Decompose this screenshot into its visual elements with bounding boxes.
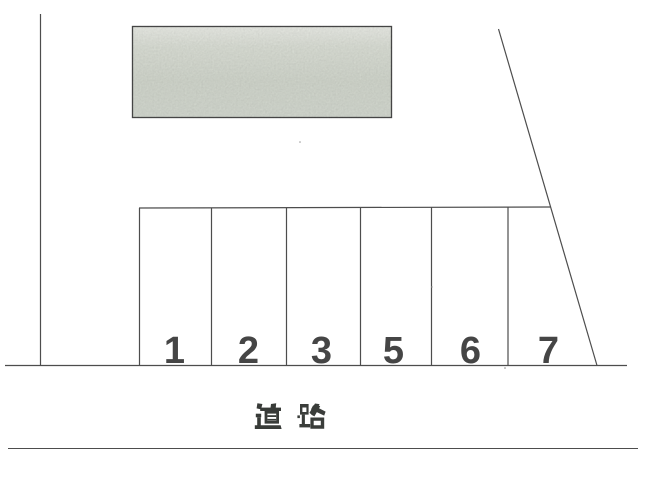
svg-text:3: 3 [311, 330, 332, 372]
svg-text:1: 1 [164, 330, 185, 372]
svg-text:5: 5 [383, 330, 404, 372]
svg-text:6: 6 [460, 330, 481, 372]
svg-text:2: 2 [238, 330, 259, 372]
svg-text:7: 7 [538, 330, 559, 372]
